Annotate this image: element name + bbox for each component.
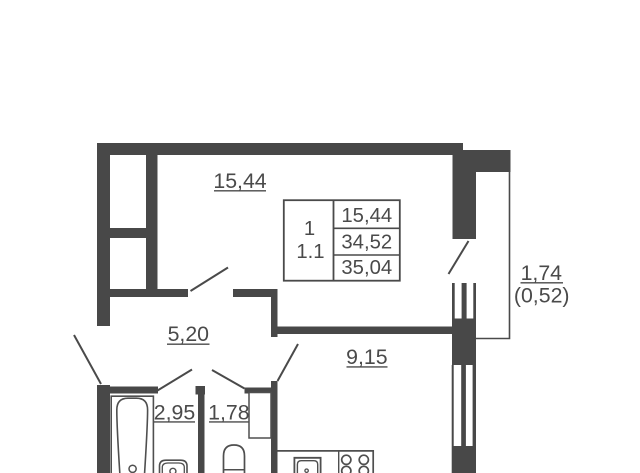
svg-text:1.1: 1.1: [296, 241, 324, 263]
svg-text:1: 1: [304, 218, 315, 240]
svg-text:1,78: 1,78: [208, 401, 249, 425]
svg-text:15,44: 15,44: [213, 169, 266, 193]
svg-text:34,52: 34,52: [341, 232, 392, 254]
svg-text:1,74: 1,74: [521, 261, 563, 285]
svg-text:5,20: 5,20: [168, 322, 210, 346]
svg-text:15,44: 15,44: [341, 205, 392, 227]
svg-text:2,95: 2,95: [154, 401, 195, 425]
svg-text:(0,52): (0,52): [514, 284, 570, 308]
svg-text:35,04: 35,04: [341, 257, 392, 279]
svg-text:9,15: 9,15: [346, 345, 387, 369]
